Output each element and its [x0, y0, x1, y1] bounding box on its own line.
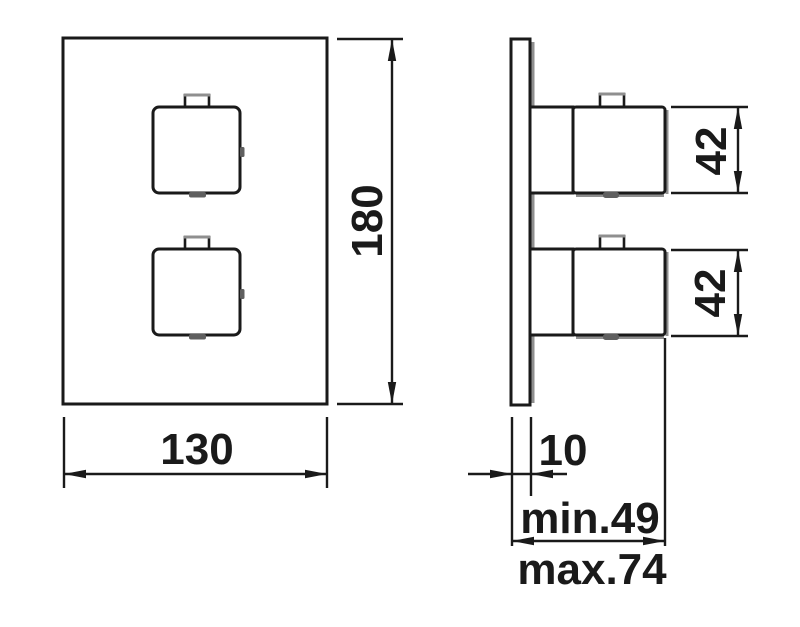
dim-label-42-bottom: 42: [686, 269, 735, 318]
dim-label-180: 180: [343, 184, 392, 257]
front-handle-top: [153, 95, 245, 198]
dim-label-10: 10: [539, 426, 588, 475]
dimension-handle-bottom: 42: [671, 250, 748, 336]
arrow-42a-up-icon: [734, 107, 742, 129]
arrow-42b-down-icon: [734, 314, 742, 336]
technical-drawing-canvas: 180 130 42 42 10: [0, 0, 800, 627]
arrow-180-up-icon: [388, 39, 396, 61]
side-handle-bottom-tab: [600, 236, 624, 249]
side-handle-top-body: [573, 107, 665, 193]
front-handle-top-indicator: [189, 192, 206, 198]
side-handle-bottom-base: [530, 249, 573, 335]
dimension-installation-depth: min.49 max.74: [512, 338, 667, 594]
dim-label-max74: max.74: [517, 545, 667, 594]
side-handle-top: [530, 94, 667, 198]
dim-label-42-top: 42: [687, 127, 736, 176]
arrow-130-left-icon: [64, 470, 86, 478]
front-plate-outline: [63, 38, 327, 404]
dimension-handle-top: 42: [671, 107, 748, 193]
front-handle-bottom-side-notch: [240, 289, 245, 299]
side-handle-bottom-indicator: [603, 334, 619, 340]
side-handle-top-base: [530, 107, 573, 193]
dimension-drawing-svg: 180 130 42 42 10: [0, 0, 800, 627]
dim-label-min49: min.49: [520, 494, 659, 543]
front-view: [63, 38, 327, 404]
dimension-front-width: 130: [64, 417, 327, 488]
side-handle-top-tab: [600, 94, 624, 107]
front-handle-bottom: [153, 237, 245, 340]
dim-label-130: 130: [160, 425, 233, 474]
front-handle-top-body: [153, 107, 240, 193]
front-handle-top-side-notch: [240, 147, 245, 157]
side-view: [511, 39, 667, 405]
side-handle-bottom-body: [573, 249, 665, 335]
side-wall-plate: [511, 39, 530, 405]
arrow-130-right-icon: [305, 470, 327, 478]
front-handle-bottom-indicator: [189, 334, 206, 340]
arrow-42b-up-icon: [734, 250, 742, 272]
arrow-10-right-icon: [490, 470, 512, 478]
front-handle-bottom-body: [153, 249, 240, 335]
arrow-180-down-icon: [388, 382, 396, 404]
side-handle-top-indicator: [603, 192, 619, 198]
dimension-front-height: 180: [337, 39, 403, 404]
side-handle-bottom: [530, 236, 667, 340]
